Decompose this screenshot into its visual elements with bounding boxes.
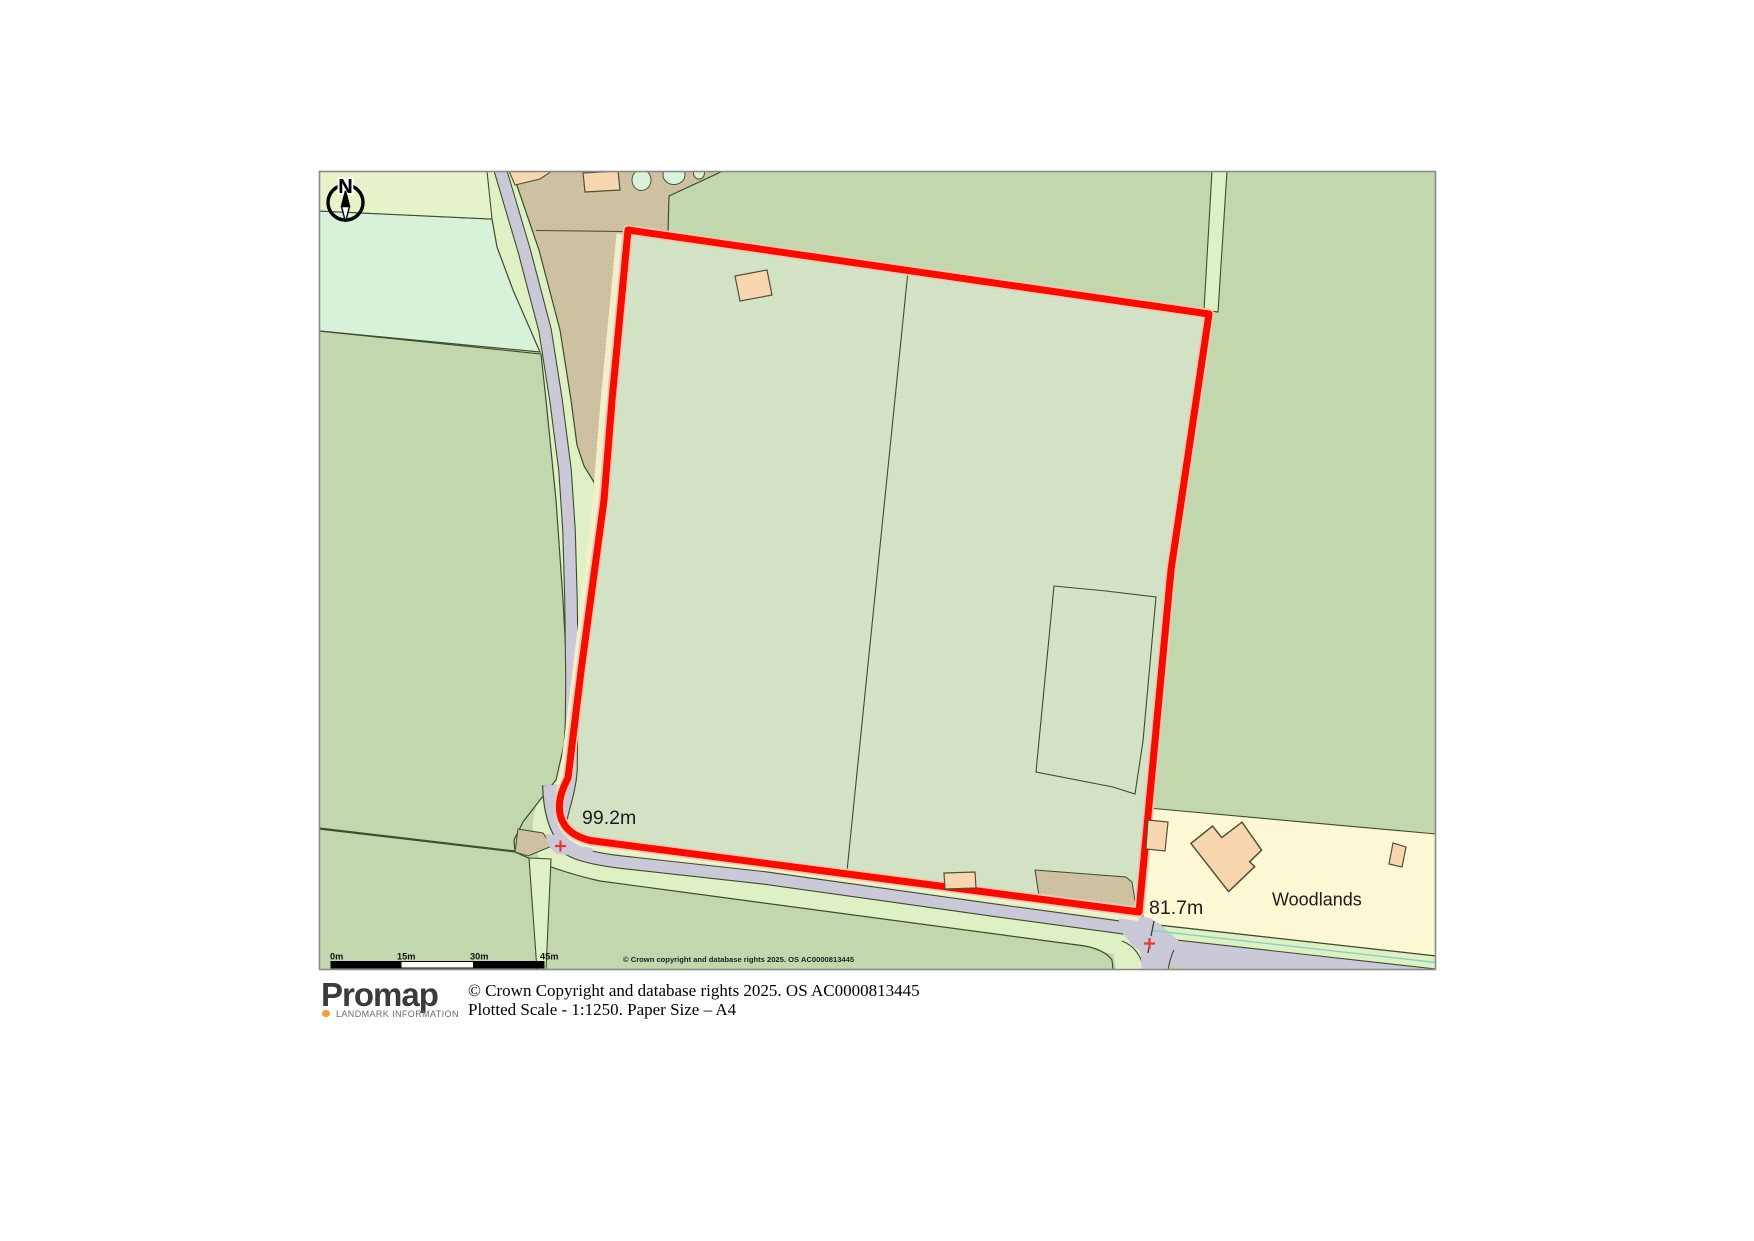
svg-text:30m: 30m [470,952,488,962]
svg-text:45m: 45m [540,952,558,962]
svg-text:0m: 0m [330,952,343,962]
svg-text:15m: 15m [397,952,415,962]
svg-text:© Crown copyright and database: © Crown copyright and database rights 20… [623,955,855,964]
svg-text:99.2m: 99.2m [582,807,636,829]
svg-text:Woodlands: Woodlands [1272,890,1362,910]
svg-text:81.7m: 81.7m [1149,897,1203,919]
